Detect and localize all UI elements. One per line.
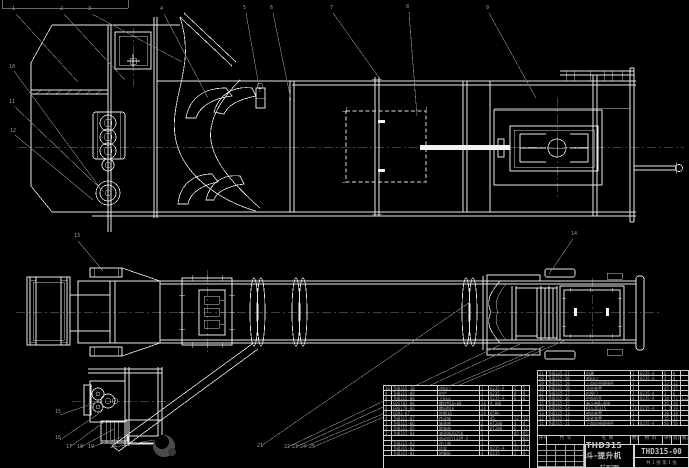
bom-cell: 6 — [513, 396, 522, 400]
bom-cell: 10 — [384, 386, 392, 390]
bom-cell: 单件 — [663, 436, 672, 444]
bom-cell: 1 — [480, 441, 489, 445]
bom-cell: 11 — [538, 421, 547, 425]
bom-cell: 45 — [663, 386, 672, 390]
bucket — [206, 176, 244, 200]
bom-cell — [681, 416, 689, 420]
drawing-number-cell: THD315-00 — [634, 444, 689, 458]
ink-smudge — [153, 435, 176, 457]
leader-line — [64, 14, 125, 80]
leader-line — [14, 106, 104, 192]
bom-cell: 料斗ZD315 — [585, 406, 631, 410]
bom-cell: 1 — [480, 391, 489, 395]
bom-cell: 总计 — [672, 436, 681, 444]
bom-cell: 地脚板 — [438, 451, 480, 455]
bom-cell: 18 — [538, 386, 547, 390]
bom-cell: 1 — [631, 386, 639, 390]
bom-cell: THD315-17 — [547, 391, 585, 395]
bom-cell: GB93-87 — [392, 411, 438, 415]
callout-number: 8 — [406, 4, 409, 10]
bom-cell: THD315-21 — [547, 371, 585, 375]
bom-cell: 12 — [538, 416, 547, 420]
callout-number: 19 — [88, 444, 94, 450]
leader-line — [78, 241, 103, 271]
bom-cell: 2 — [480, 421, 489, 425]
leader-line — [14, 71, 100, 188]
bom-cell: 20 — [538, 376, 547, 380]
head-section-plan — [483, 269, 644, 359]
callout-number: 17 — [66, 444, 72, 450]
bom-cell: 12 — [513, 416, 522, 420]
callout-number: 25 — [309, 444, 315, 450]
bom-cell: Q235-A — [639, 406, 663, 410]
bom-cell: 15 — [672, 416, 681, 420]
bom-cell: THD315-06 — [392, 421, 438, 425]
bom-row: 11THD315-11下部机座焊接件1Q235-A5656 — [538, 421, 688, 426]
bom-cell — [681, 371, 689, 375]
bom-cell: 联轴器 — [438, 426, 480, 430]
callout-number: 5 — [243, 5, 246, 11]
bom-cell: 检视门 — [585, 391, 631, 395]
bom-cell: 15 — [538, 401, 547, 405]
bom-cell: 6 — [384, 406, 392, 410]
callout-number: 15 — [55, 409, 61, 415]
bom-cell: Q235 — [489, 451, 513, 455]
bom-cell: 6 — [672, 391, 681, 395]
bom-cell: 备注 — [681, 436, 689, 444]
bom-cell: 护栏 — [438, 391, 480, 395]
callout-number: 13 — [74, 233, 80, 239]
callout-number: 14 — [571, 231, 577, 237]
bom-cell: 底轮装置 — [585, 411, 631, 415]
bom-cell: GB5782-86 — [392, 401, 438, 405]
bom-cell: 38 — [672, 411, 681, 415]
bom-cell: 1 — [631, 421, 639, 425]
takeup-pulley-assembly — [93, 112, 125, 205]
bom-cell: 1.2 — [663, 406, 672, 410]
bom-cell: 8 — [522, 451, 531, 455]
leader-line — [92, 14, 182, 62]
bom-cell: 5 — [513, 386, 522, 390]
bom-cell: 4 — [672, 376, 681, 380]
bom-cell: 18 — [663, 396, 672, 400]
drawing-subtitle: 装配图 — [600, 462, 620, 468]
bom-cell: 机罩 — [585, 371, 631, 375]
bom-cell: 72 — [672, 396, 681, 400]
bom-cell: THD315-15 — [547, 401, 585, 405]
bom-cell: Q235-A — [639, 396, 663, 400]
bom-cell: Q235-A — [639, 421, 663, 425]
bom-cell — [681, 386, 689, 390]
bom-cell: 8 — [513, 391, 522, 395]
bom-cell: THD315-01 — [392, 451, 438, 455]
bom-cell: 22 — [522, 446, 531, 450]
bom-cell: 65Mn — [489, 411, 513, 415]
bom-cell — [681, 421, 689, 425]
bom-cell — [639, 411, 663, 415]
bom-cell: GB6170-86 — [392, 406, 438, 410]
leader-line — [16, 14, 78, 82]
bom-cell: 4 — [663, 376, 672, 380]
bom-cell — [681, 401, 689, 405]
bom-cell: 4 — [384, 416, 392, 420]
callout-number: 2 — [60, 6, 63, 12]
bom-cell — [681, 381, 689, 385]
bom-cell — [384, 446, 392, 450]
bom-cell: 1 — [631, 401, 639, 405]
callout-number: 7 — [330, 5, 333, 11]
bom-cell: 逆止器 — [438, 441, 480, 445]
callout-number: 6 — [270, 5, 273, 11]
bom-cell: Q235-A — [639, 371, 663, 375]
bom-cell: 传动轴 — [438, 416, 480, 420]
bom-cell: 下部机座焊接件 — [585, 421, 631, 425]
bom-cell: 1 — [480, 386, 489, 390]
bom-cell: 螺母M16 — [438, 406, 480, 410]
bom-cell: THD315-19 — [547, 381, 585, 385]
bom-cell: 螺栓M16×60 — [438, 401, 480, 405]
bom-cell: THD315-13 — [547, 411, 585, 415]
bom-cell: 1 — [480, 431, 489, 435]
bom-cell: 4 — [631, 396, 639, 400]
bom-cell — [639, 386, 663, 390]
leader-line — [273, 13, 291, 100]
boot-section — [31, 25, 180, 212]
title-cell: THD315斗-提升机 装配图 — [585, 444, 634, 468]
callout-number: 22 — [284, 444, 290, 450]
bom-cell: 32 — [663, 381, 672, 385]
bom-cell: 头轮装置 — [585, 386, 631, 390]
end-flange-plate — [636, 276, 644, 350]
bom-cell: THD315-18 — [547, 386, 585, 390]
callout-number: 10 — [9, 64, 15, 70]
callout-number: 11 — [9, 99, 15, 105]
bom-cell: 1 — [631, 411, 639, 415]
bom-cell: 17 — [538, 391, 547, 395]
bom-cell: 畚斗带B=400 — [585, 401, 631, 405]
callout-number: 20 — [110, 444, 116, 450]
bom-cell — [522, 406, 531, 410]
top-view-elevation — [18, 13, 684, 232]
bom-cell: HT200 — [489, 426, 513, 430]
bom-cell: THD315-04 — [392, 431, 438, 435]
bom-cell: 机架 — [438, 446, 480, 450]
bom-cell: 6 — [663, 371, 672, 375]
bom-cell: 15 — [663, 416, 672, 420]
bom-cell: THD315-14 — [547, 406, 585, 410]
bom-cell: 6 — [672, 371, 681, 375]
bom-cell: 45 — [489, 416, 513, 420]
support-brace — [112, 344, 258, 451]
bom-cell: 2 — [513, 451, 522, 455]
callout-number: 4 — [160, 6, 163, 12]
drive-unit-plan — [84, 367, 162, 446]
bom-cell: 38 — [663, 411, 672, 415]
bom-cell: 24 — [480, 401, 489, 405]
bom-cell — [392, 436, 438, 440]
leader-line — [60, 412, 101, 440]
bom-cell: 4 — [480, 451, 489, 455]
bom-cell: 1 — [631, 381, 639, 385]
bom-cell — [639, 401, 663, 405]
bom-cell: THD315-03 — [392, 441, 438, 445]
bom-cell: 4.8级 — [489, 401, 513, 405]
bom-cell: THD315-16 — [547, 396, 585, 400]
bom-cell: THD315-11 — [547, 421, 585, 425]
bom-cell: 1 — [480, 446, 489, 450]
bom-cell — [489, 406, 513, 410]
bom-cell: 1 — [480, 396, 489, 400]
output-shaft-end — [676, 165, 683, 172]
bom-cell: 22 — [513, 446, 522, 450]
bom-cell — [489, 436, 513, 440]
bom-cell: THD315-09 — [392, 391, 438, 395]
bom-cell: 轴承座 — [438, 421, 480, 425]
bom-cell: 垫圈16 — [438, 411, 480, 415]
bucket — [214, 88, 256, 114]
drawing-title: THD315斗-提升机 — [586, 441, 633, 461]
bom-cell: 24 — [480, 406, 489, 410]
bom-cell: 56 — [672, 421, 681, 425]
bom-cell: THD315-20 — [547, 376, 585, 380]
bom-cell: THD315-05 — [392, 426, 438, 430]
bom-cell: 序号 — [538, 436, 547, 444]
callout-number: 3 — [88, 6, 91, 12]
inlet-box-plan — [27, 277, 110, 345]
bom-cell — [384, 451, 392, 455]
bom-table-right: 21THD315-21机罩1Q235-A6620THD315-20卸料口1Q23… — [537, 370, 689, 436]
bom-cell — [384, 441, 392, 445]
bom-cell: 张紧装置 — [585, 416, 631, 420]
cad-drawing-viewport: 1234567891011121314151617181920212223242… — [0, 0, 689, 468]
bom-cell: Q235-A — [489, 396, 513, 400]
callout-number: 23 — [292, 444, 298, 450]
callout-number: 18 — [77, 444, 83, 450]
bom-cell: THD315-10 — [392, 386, 438, 390]
bom-cell: 3 — [663, 391, 672, 395]
bom-cell — [639, 416, 663, 420]
sheet-note-cell: 共 1 张 第 1 张 — [634, 457, 689, 468]
leader-line — [409, 12, 417, 116]
bellows-joint — [537, 286, 557, 340]
bom-cell — [513, 406, 522, 410]
leader-line — [60, 402, 97, 415]
bom-cell: 4 — [513, 421, 522, 425]
bom-cell: 24 — [480, 411, 489, 415]
bom-cell: HT200 — [489, 421, 513, 425]
callout-number: 21 — [257, 443, 263, 449]
bom-cell: 1 — [480, 416, 489, 420]
callout-number: 9 — [486, 5, 489, 11]
bom-cell: 8 — [522, 391, 531, 395]
bom-cell: 24 — [631, 406, 639, 410]
sheet-note: 共 1 张 第 1 张 — [646, 460, 677, 466]
bom-cell: 2 — [384, 426, 392, 430]
callout-number: 12 — [10, 128, 16, 134]
bom-cell — [513, 401, 522, 405]
bom-cell — [489, 441, 513, 445]
door-handle — [378, 169, 385, 172]
bom-cell: 12 — [522, 416, 531, 420]
bom-cell: THD315-08 — [392, 396, 438, 400]
bom-cell: 电动机Y132M-4 — [438, 436, 480, 440]
bom-cell: Q235 — [489, 391, 513, 395]
bom-cell: 6 — [513, 426, 522, 430]
bom-cell: THD315-12 — [547, 416, 585, 420]
bom-cell — [681, 376, 689, 380]
bom-cell: 材 料 — [639, 436, 663, 444]
leader-line — [333, 13, 380, 79]
bom-cell: 5 — [522, 386, 531, 390]
bom-cell: Q235-A — [489, 446, 513, 450]
bom-cell — [513, 411, 522, 415]
bom-cell: 2 — [480, 426, 489, 430]
bom-cell: 45 — [672, 386, 681, 390]
bom-cell: 减速器ZQ250 — [438, 431, 480, 435]
bom-cell: 1 — [631, 376, 639, 380]
bom-cell: 26 — [663, 401, 672, 405]
bom-cell: 85 — [513, 431, 522, 435]
bom-cell: 56 — [663, 421, 672, 425]
drive-shaft — [420, 145, 510, 150]
bom-cell: 下料斗 — [438, 396, 480, 400]
bom-cell: Q235-A — [639, 376, 663, 380]
bom-cell: 3 — [522, 441, 531, 445]
bom-cell: L=2m — [681, 396, 689, 400]
bom-cell — [681, 406, 689, 410]
bom-cell: 3 — [384, 421, 392, 425]
revision-grid — [537, 444, 585, 468]
bom-cell — [681, 391, 689, 395]
bom-cell: THD315-02 — [392, 446, 438, 450]
bom-table-left: 10THD315-10进料口1Q235-A559THD315-09护栏1Q235… — [383, 385, 530, 468]
bom-cell: 中部机壳 — [585, 396, 631, 400]
bom-cell: 9 — [384, 391, 392, 395]
head-drive-section — [420, 68, 683, 222]
bom-cell — [522, 401, 531, 405]
bom-cell: Q235-A — [489, 386, 513, 390]
bom-cell: 16 — [538, 396, 547, 400]
bom-cell — [489, 431, 513, 435]
bom-cell: Q235-A — [639, 391, 663, 395]
callout-number: 24 — [300, 444, 306, 450]
inspection-door-elevation — [342, 107, 426, 182]
bom-cell: 19 — [538, 381, 547, 385]
bom-cell: 21 — [538, 371, 547, 375]
bom-cell — [384, 436, 392, 440]
bom-row: THD315-01地脚板4Q23528 — [384, 451, 529, 456]
bom-cell: 7 — [384, 401, 392, 405]
bom-cell — [522, 411, 531, 415]
leader-line — [15, 135, 93, 200]
callout-number: 1 — [12, 6, 15, 12]
bom-cell: 26 — [672, 401, 681, 405]
bom-cell: 5 — [384, 411, 392, 415]
bom-cell: 代 号 — [547, 436, 585, 444]
bucket — [186, 88, 232, 118]
bom-cell: 12 — [522, 426, 531, 430]
bom-cell: 2 — [631, 391, 639, 395]
bom-cell: 32 — [672, 381, 681, 385]
bom-cell: 85 — [522, 431, 531, 435]
bom-cell: 8 — [384, 396, 392, 400]
bom-cell: 1 — [384, 431, 392, 435]
bom-cell — [681, 411, 689, 415]
bom-cell — [513, 436, 522, 440]
bom-cell: THD315-07 — [392, 416, 438, 420]
bom-cell: 8 — [522, 421, 531, 425]
bom-cell: 1 — [480, 436, 489, 440]
bom-cell: 3 — [513, 441, 522, 445]
door-handle — [378, 120, 385, 123]
bom-cell: 上部机壳焊接件 — [585, 381, 631, 385]
bom-cell: 卸料口 — [585, 376, 631, 380]
bom-cell: B3 — [522, 436, 531, 440]
frame-corner-artifact — [2, 0, 128, 8]
bom-cell: 1 — [631, 371, 639, 375]
bom-cell: 14 — [538, 406, 547, 410]
bom-cell: 6 — [522, 396, 531, 400]
callout-balloons: 1234567891011121314151617181920212223242… — [9, 4, 577, 450]
bom-cell: 29 — [672, 406, 681, 410]
bom-cell: 1 — [631, 416, 639, 420]
bom-cell: 13 — [538, 411, 547, 415]
bom-cell — [639, 381, 663, 385]
bom-cell: 进料口 — [438, 386, 480, 390]
callout-number: 16 — [55, 435, 61, 441]
leader-line — [246, 13, 260, 92]
drawing-number: THD315-00 — [641, 447, 682, 456]
